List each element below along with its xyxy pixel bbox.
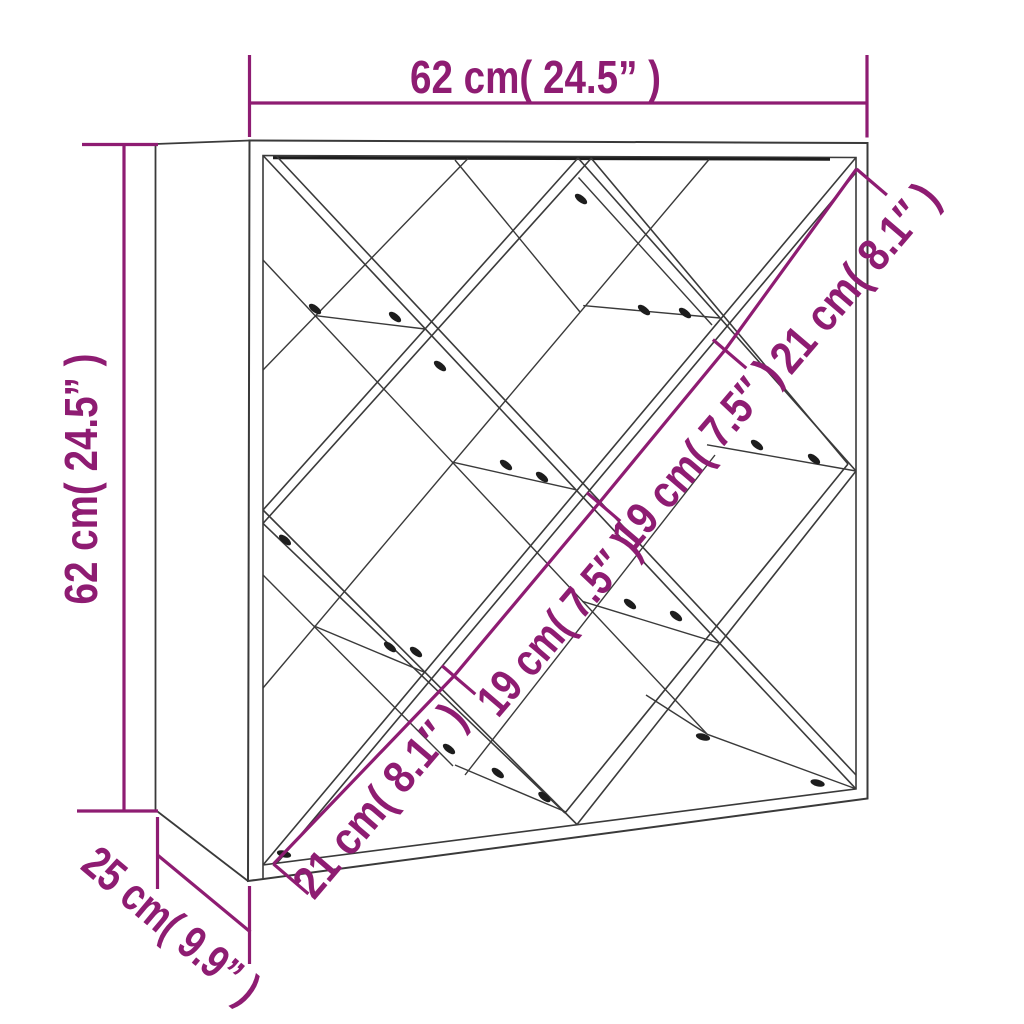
svg-text:21 cm( 8.1″ ): 21 cm( 8.1″ ) <box>759 172 949 382</box>
svg-text:62 cm( 24.5” ): 62 cm( 24.5” ) <box>410 51 661 103</box>
svg-text:62 cm( 24.5” ): 62 cm( 24.5” ) <box>55 354 107 605</box>
svg-text:21 cm( 8.1″ ): 21 cm( 8.1″ ) <box>282 693 476 908</box>
